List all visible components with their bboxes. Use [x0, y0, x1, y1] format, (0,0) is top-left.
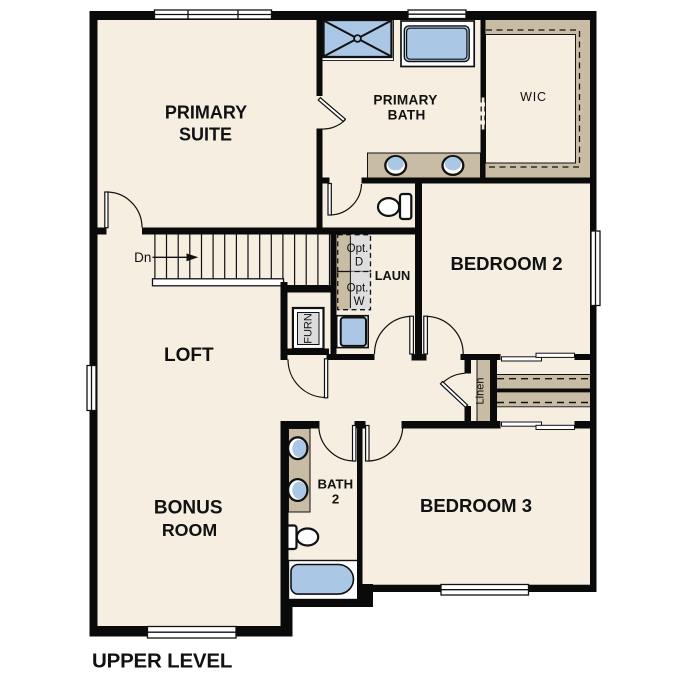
- svg-text:SUITE: SUITE: [179, 124, 232, 144]
- svg-text:PRIMARY: PRIMARY: [165, 103, 247, 123]
- svg-text:WIC: WIC: [520, 90, 547, 104]
- svg-text:LOFT: LOFT: [164, 345, 214, 366]
- svg-text:PRIMARY: PRIMARY: [373, 93, 437, 108]
- svg-text:UPPER LEVEL: UPPER LEVEL: [92, 650, 232, 673]
- svg-text:BEDROOM 3: BEDROOM 3: [420, 495, 532, 516]
- svg-text:Linen: Linen: [475, 378, 487, 405]
- svg-text:BATH: BATH: [388, 108, 426, 123]
- svg-text:2: 2: [332, 491, 339, 506]
- svg-text:LAUN: LAUN: [375, 268, 411, 283]
- svg-text:Opt.: Opt.: [347, 283, 369, 295]
- svg-text:BONUS: BONUS: [154, 497, 223, 518]
- svg-text:W: W: [354, 296, 365, 308]
- svg-text:BEDROOM 2: BEDROOM 2: [450, 253, 562, 274]
- svg-text:ROOM: ROOM: [162, 520, 217, 540]
- svg-text:Opt.: Opt.: [347, 243, 369, 255]
- svg-text:Dn: Dn: [134, 250, 151, 265]
- svg-text:FURN: FURN: [303, 313, 315, 344]
- svg-text:BATH: BATH: [317, 477, 353, 492]
- svg-text:D: D: [355, 257, 363, 269]
